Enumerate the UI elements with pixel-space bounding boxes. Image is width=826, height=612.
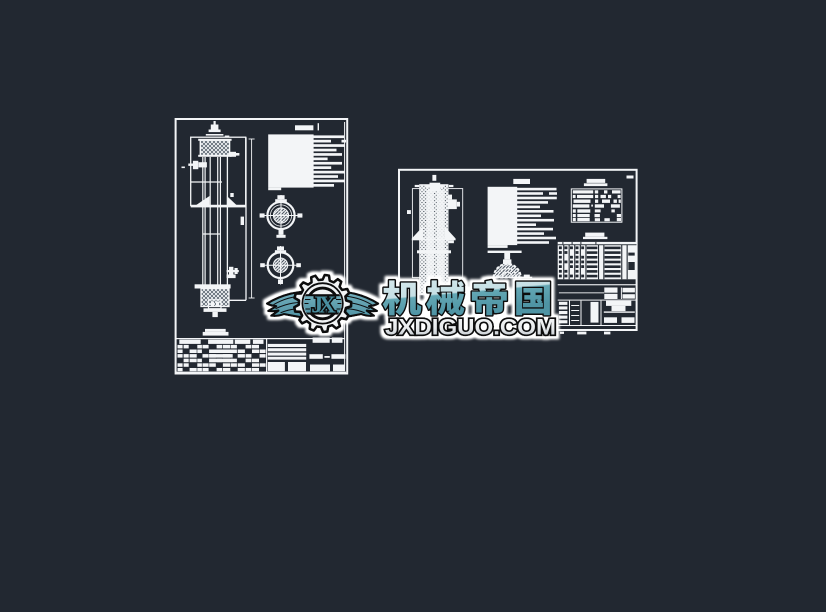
svg-text:JXDIGUO.COM: JXDIGUO.COM [385, 315, 556, 340]
svg-text:JX: JX [311, 293, 336, 319]
